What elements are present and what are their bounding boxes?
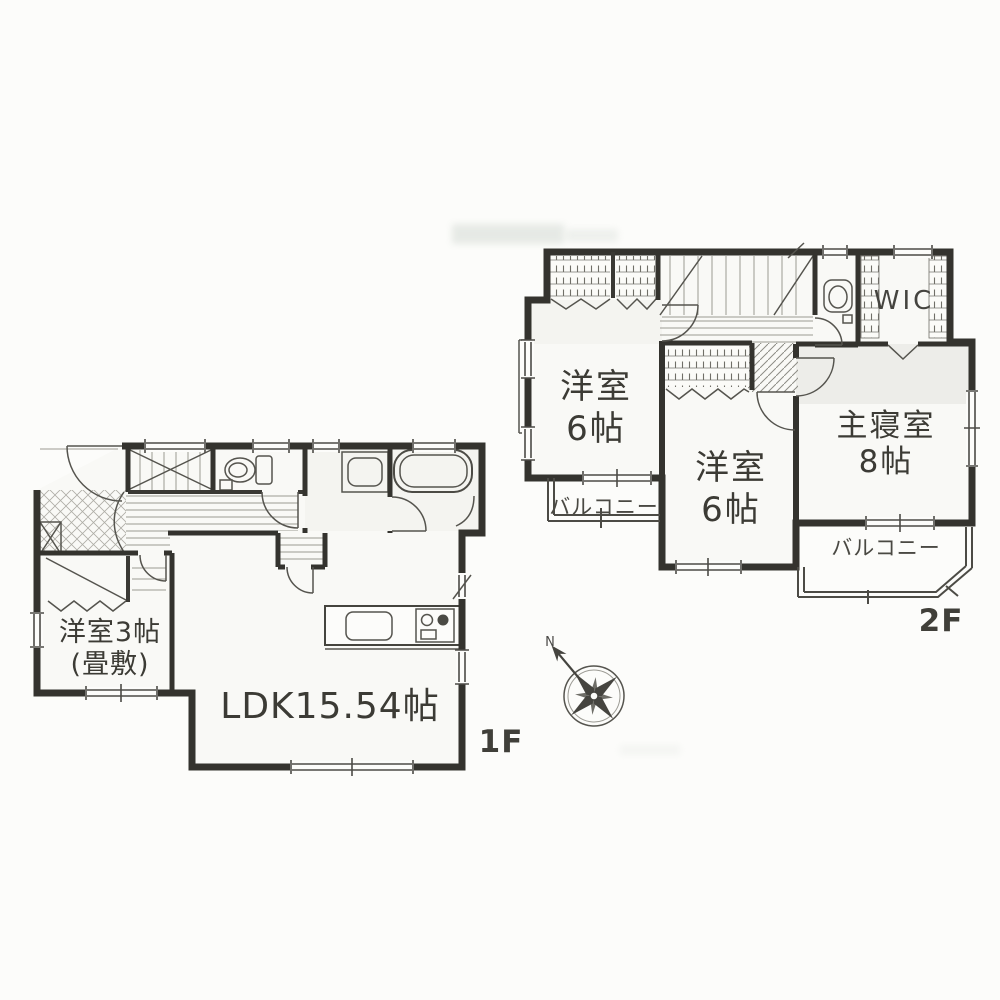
second-floor-plan: 洋室 6帖 洋室 6帖 主寝室 8帖 WIC バルコニー バルコニー 2F bbox=[519, 243, 980, 639]
window bbox=[312, 439, 340, 453]
room-label-japanese: 洋室3帖 bbox=[59, 617, 161, 648]
first-floor-plan: 洋室3帖 (畳敷) LDK15.54帖 1F bbox=[30, 439, 523, 776]
floorplan-scan-page: 洋室 6帖 洋室 6帖 主寝室 8帖 WIC バルコニー バルコニー 2F bbox=[0, 0, 1000, 1000]
room-size-center: 6帖 bbox=[701, 490, 761, 530]
room-size-master-bedroom: 8帖 bbox=[859, 444, 914, 480]
landing-hatch bbox=[748, 343, 798, 392]
room-label-ldk: LDK15.54帖 bbox=[220, 686, 439, 727]
hall-floor-planks bbox=[126, 531, 170, 551]
floor-label-2f: 2F bbox=[919, 603, 964, 639]
room-label-center: 洋室 bbox=[695, 448, 767, 488]
window bbox=[964, 390, 980, 467]
window bbox=[412, 439, 456, 453]
room-label-master-bedroom: 主寝室 bbox=[837, 408, 936, 444]
balcony-label-south: バルコニー bbox=[831, 536, 941, 560]
room-label-west: 洋室 bbox=[560, 367, 632, 407]
floorplan-drawing: 洋室 6帖 洋室 6帖 主寝室 8帖 WIC バルコニー バルコニー 2F bbox=[0, 0, 1000, 1000]
window bbox=[521, 340, 535, 378]
room-size-japanese: (畳敷) bbox=[70, 649, 149, 680]
master-bedroom-tint bbox=[796, 344, 972, 404]
compass-icon: N bbox=[529, 626, 637, 738]
room-label-wic: WIC bbox=[874, 286, 935, 316]
west-room-tint bbox=[528, 300, 662, 344]
balcony-label-west: バルコニー bbox=[549, 495, 659, 519]
window bbox=[252, 439, 290, 453]
floor-label-1f: 1F bbox=[479, 724, 524, 760]
hall-floor-planks bbox=[126, 492, 298, 531]
window bbox=[30, 612, 44, 648]
window bbox=[455, 650, 469, 684]
window bbox=[521, 427, 535, 460]
window bbox=[822, 245, 848, 259]
hall-floor-planks bbox=[660, 317, 813, 343]
room-size-west: 6帖 bbox=[566, 409, 626, 449]
window bbox=[893, 245, 933, 259]
compass-north-label: N bbox=[545, 635, 555, 650]
kitchen-counter bbox=[325, 606, 462, 649]
hall-floor-planks bbox=[280, 535, 323, 565]
window bbox=[144, 439, 206, 453]
